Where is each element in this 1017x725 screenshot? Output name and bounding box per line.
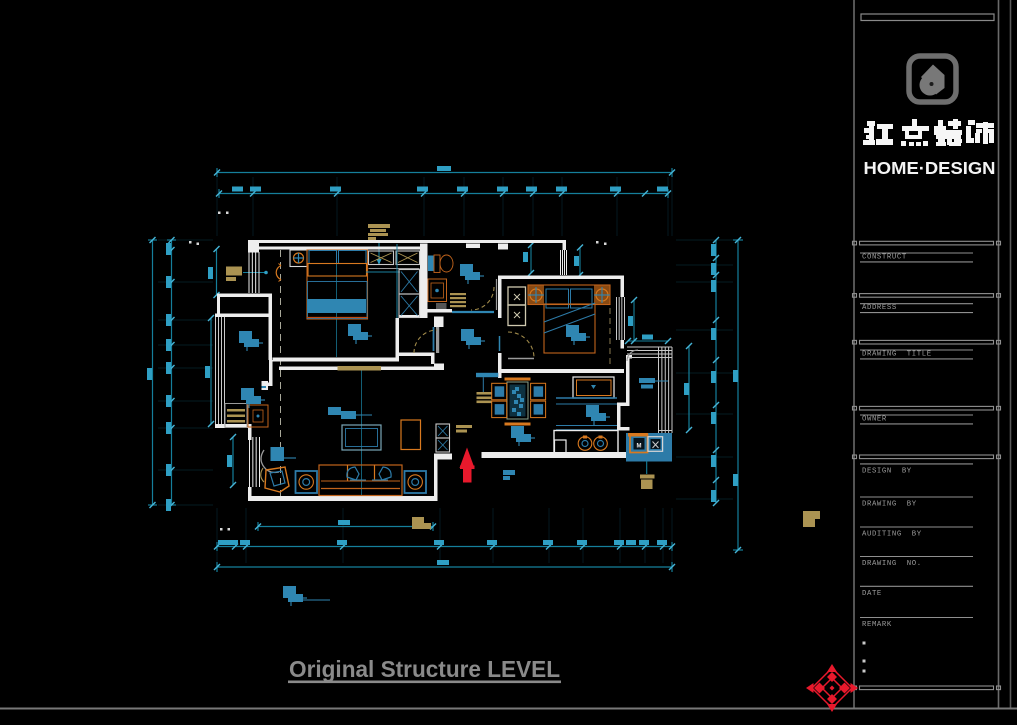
svg-text:DRAWING NO.: DRAWING NO. bbox=[862, 560, 922, 568]
svg-text:DESIGN BY: DESIGN BY bbox=[862, 467, 912, 475]
svg-text:DRAWING TITLE: DRAWING TITLE bbox=[862, 351, 932, 359]
svg-text:CONSTRUCT: CONSTRUCT bbox=[862, 254, 907, 262]
svg-text:Original Structure LEVEL: Original Structure LEVEL bbox=[289, 656, 560, 682]
svg-text:HOME·DESIGN: HOME·DESIGN bbox=[864, 158, 996, 178]
svg-text:AUDITING BY: AUDITING BY bbox=[862, 531, 922, 539]
svg-text:M: M bbox=[637, 444, 642, 450]
svg-text:REMARK: REMARK bbox=[862, 621, 892, 629]
svg-text:OWNER: OWNER bbox=[862, 416, 887, 424]
svg-text:DRAWING BY: DRAWING BY bbox=[862, 501, 917, 509]
svg-text:ADDRESS: ADDRESS bbox=[862, 304, 897, 312]
svg-text:DATE: DATE bbox=[862, 590, 882, 598]
